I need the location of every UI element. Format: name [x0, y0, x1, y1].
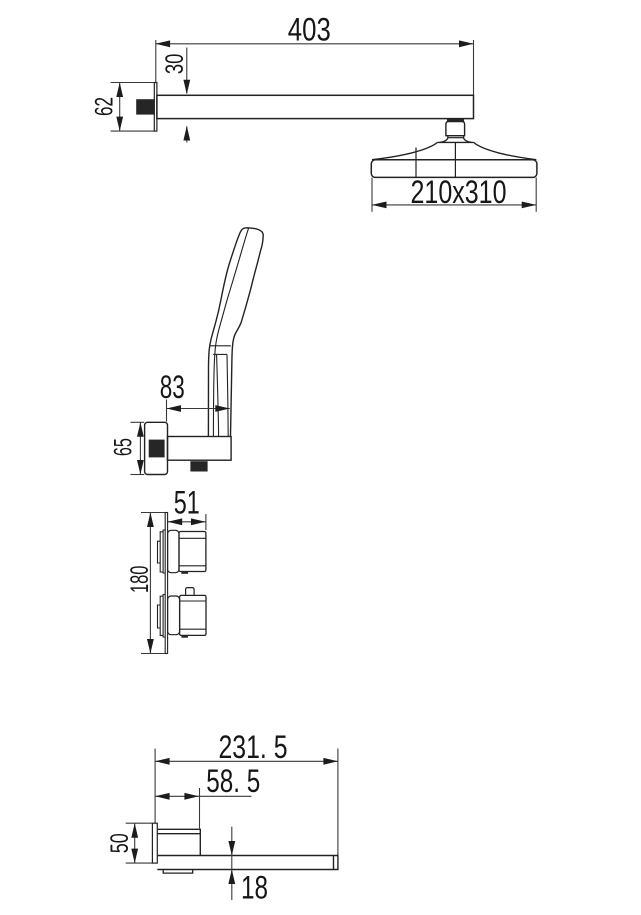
- svg-text:180: 180: [126, 566, 154, 594]
- svg-text:83: 83: [160, 369, 185, 405]
- svg-text:62: 62: [90, 97, 118, 116]
- svg-text:403: 403: [288, 12, 331, 48]
- svg-text:30: 30: [161, 54, 189, 75]
- svg-text:51: 51: [174, 485, 200, 521]
- svg-text:231. 5: 231. 5: [219, 729, 288, 765]
- svg-text:58. 5: 58. 5: [206, 763, 260, 799]
- svg-text:65: 65: [110, 438, 138, 456]
- svg-text:18: 18: [241, 870, 268, 906]
- svg-text:50: 50: [106, 833, 134, 853]
